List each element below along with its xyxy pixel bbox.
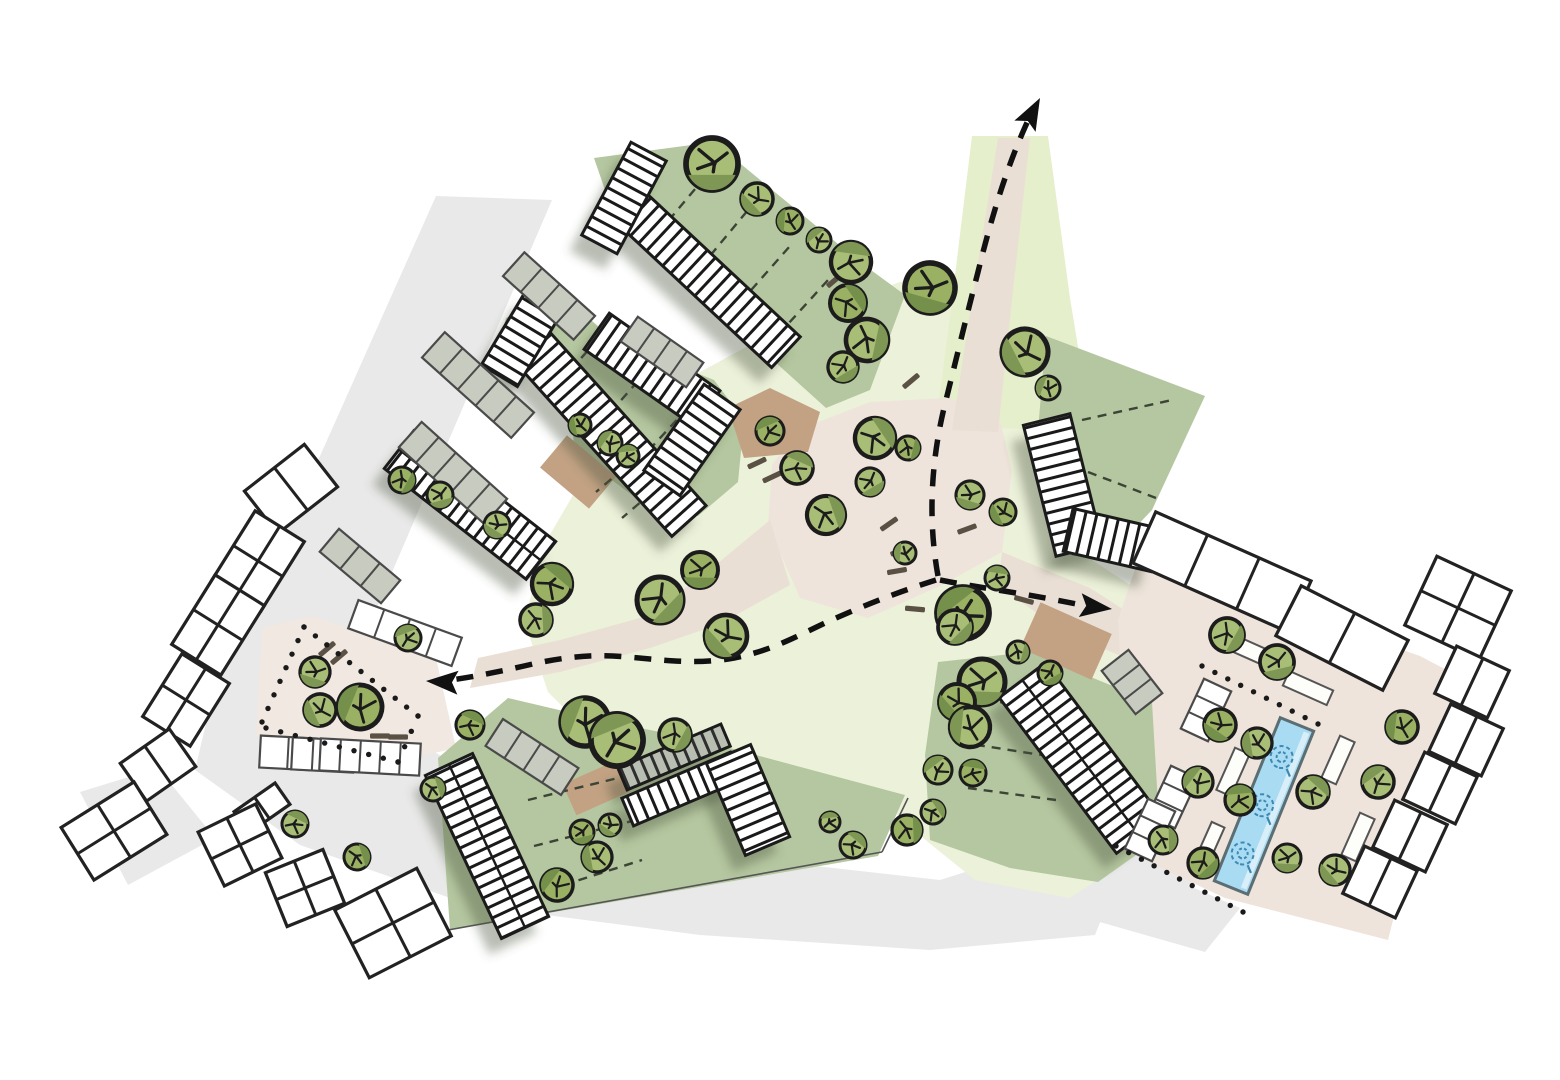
boundary-dot [393, 696, 398, 701]
boundary-dot [1177, 876, 1182, 881]
tree [682, 552, 719, 589]
tree [1272, 843, 1301, 873]
boundary-dot [1151, 863, 1156, 868]
boundary-dot [1315, 721, 1320, 726]
boundary-dot [324, 642, 329, 647]
boundary-dot [336, 651, 341, 656]
boundary-dot [366, 752, 371, 757]
tree [891, 814, 922, 845]
boundary-dot [1190, 883, 1195, 888]
boundary-dot [404, 704, 409, 709]
boundary-dot [322, 740, 327, 745]
boundary-dot [395, 759, 400, 764]
tree [819, 811, 841, 833]
boundary-dot [1302, 715, 1307, 720]
boundary-dot [1139, 857, 1144, 862]
boundary-dot [293, 733, 298, 738]
boundary-dot [415, 713, 420, 718]
boundary-dot [271, 692, 276, 697]
boundary-dot [313, 633, 318, 638]
tree [616, 444, 641, 469]
boundary-dot [370, 678, 375, 683]
boundary-dot [381, 687, 386, 692]
boundary-dot [1113, 843, 1118, 848]
boundary-dot [1228, 903, 1233, 908]
boundary-dot [1277, 702, 1282, 707]
tree [1224, 784, 1257, 817]
boundary-dot [358, 669, 363, 674]
tree [776, 207, 804, 235]
tree [686, 138, 738, 190]
boundary-dot [409, 729, 414, 734]
boundary-dot [351, 748, 356, 753]
boundary-dot [307, 737, 312, 742]
boundary-dot [1225, 676, 1230, 681]
masterplan-site-plan [0, 0, 1560, 1080]
tree [893, 541, 917, 565]
bench [388, 734, 408, 739]
boundary-dot [1238, 683, 1243, 688]
boundary-dot [277, 679, 282, 684]
boundary-dot [1251, 689, 1256, 694]
boundary-dot [289, 651, 294, 656]
boundary-dot [337, 744, 342, 749]
tree [948, 705, 992, 749]
boundary-dot [1199, 663, 1204, 668]
boundary-dot [1164, 870, 1169, 875]
boundary-dot [263, 725, 268, 730]
boundary-dot [402, 744, 407, 749]
boundary-dot [1215, 896, 1220, 901]
tree [1384, 709, 1420, 745]
boundary-dot [265, 706, 270, 711]
boundary-dot [283, 665, 288, 670]
boundary-dot [301, 624, 306, 629]
boundary-dot [1240, 909, 1245, 914]
boundary-dot [1212, 670, 1217, 675]
parking-row [319, 738, 421, 775]
boundary-dot [278, 729, 283, 734]
masterplan-svg [0, 0, 1560, 1080]
boundary-dot [381, 756, 386, 761]
tree [1149, 826, 1178, 854]
boundary-dot [347, 660, 352, 665]
boundary-dot [1126, 850, 1131, 855]
bench [370, 733, 390, 738]
tree [519, 603, 553, 637]
boundary-dot [1264, 696, 1269, 701]
boundary-dot [295, 638, 300, 643]
boundary-dot [259, 719, 264, 724]
boundary-dot [1202, 890, 1207, 895]
boundary-dot [1290, 708, 1295, 713]
